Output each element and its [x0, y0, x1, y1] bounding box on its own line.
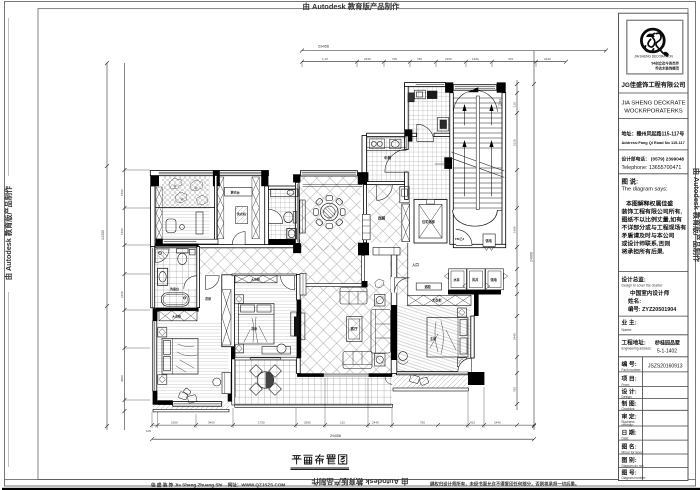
svg-text:主卧: 主卧 — [430, 336, 437, 341]
svg-text:5-1-1402: 5-1-1402 — [657, 349, 677, 355]
svg-text:1,10: 1,10 — [322, 57, 328, 61]
svg-text:编号: ZYZ20501904: 编号: ZYZ20501904 — [628, 305, 676, 313]
svg-text:或设计师联系,否则: 或设计师联系,否则 — [622, 240, 671, 248]
svg-text:姓名:: 姓名: — [627, 297, 641, 305]
svg-text:750: 750 — [420, 421, 425, 425]
svg-text:工程地址:: 工程地址: — [622, 339, 646, 347]
svg-text:1495: 1495 — [513, 226, 517, 233]
svg-text:强电: 强电 — [486, 238, 493, 243]
svg-text:中厨: 中厨 — [384, 155, 392, 160]
svg-text:415: 415 — [470, 421, 475, 425]
svg-text:Address:Fang Qi Road No 115-11: Address:Fang Qi Road No 115-117 — [622, 140, 685, 145]
svg-text:西厨: 西厨 — [378, 216, 386, 221]
svg-text:760: 760 — [417, 57, 422, 61]
svg-text:2460: 2460 — [120, 291, 124, 298]
svg-text:Engineering address:: Engineering address: — [622, 347, 652, 351]
svg-text:编 号:: 编 号: — [622, 360, 637, 368]
svg-text:不详部分或与工程现场有: 不详部分或与工程现场有 — [622, 224, 687, 232]
svg-text:强电: 强电 — [491, 277, 498, 282]
svg-text:桫桂园品墅: 桫桂园品墅 — [655, 340, 680, 347]
svg-text:大衣柜: 大衣柜 — [251, 277, 260, 282]
svg-text:2440: 2440 — [544, 57, 551, 61]
svg-text:2440: 2440 — [364, 57, 371, 61]
svg-text:图 名:: 图 名: — [622, 443, 637, 451]
svg-text:1500: 1500 — [120, 189, 124, 196]
svg-text:中国室内设计师: 中国室内设计师 — [630, 289, 670, 297]
svg-text:图 说:: 图 说: — [622, 177, 639, 186]
svg-text:次卧: 次卧 — [251, 326, 258, 331]
svg-text:JG佳盛饰工程有限公司: JG佳盛饰工程有限公司 — [622, 81, 686, 89]
svg-text:装饰工程有限公司所有,: 装饰工程有限公司所有, — [621, 208, 683, 216]
svg-text:项 目:: 项 目: — [622, 375, 637, 383]
svg-text:2950: 2950 — [304, 421, 311, 425]
svg-text:Diagram number:: Diagram number: — [622, 476, 647, 480]
svg-text:Telephone: 13655700471: Telephone: 13655700471 — [622, 165, 682, 171]
svg-text:1750: 1750 — [258, 421, 265, 425]
svg-text:由 Autodesk 教育版产品制作: 由 Autodesk 教育版产品制作 — [311, 477, 409, 486]
svg-text:图 别:: 图 别: — [622, 456, 637, 464]
svg-text:设计总监:: 设计总监: — [622, 276, 646, 284]
svg-text:14350: 14350 — [101, 230, 105, 240]
svg-text:大衣柜: 大衣柜 — [172, 314, 181, 319]
svg-text:110: 110 — [340, 421, 345, 425]
svg-text:入口: 入口 — [411, 262, 419, 267]
svg-text:更衣台: 更衣台 — [231, 190, 240, 195]
svg-text:由 Autodesk 教育版产品制作: 由 Autodesk 教育版产品制作 — [692, 168, 700, 263]
svg-text:1460: 1460 — [120, 228, 124, 235]
svg-text:24666: 24666 — [530, 252, 534, 262]
svg-text:FM乙3: FM乙3 — [455, 236, 465, 241]
svg-text:470: 470 — [508, 57, 513, 61]
svg-text:将承担所有后果.: 将承担所有后果. — [622, 248, 665, 256]
svg-text:乔达木装饰模范: 乔达木装饰模范 — [654, 66, 679, 71]
svg-text:次卧: 次卧 — [205, 296, 212, 301]
svg-text:29456: 29456 — [330, 433, 342, 438]
svg-text:继权归设计师所有，未经书面允许不得复印任何部分，否则将承担一: 继权归设计师所有，未经书面允许不得复印任何部分，否则将承担一切后果。 — [430, 480, 579, 487]
svg-text:'94创立迄今的杰作: '94创立迄今的杰作 — [651, 61, 680, 66]
svg-text:JIA SHENG DECKRATE: JIA SHENG DECKRATE — [621, 101, 685, 107]
svg-text:设计部电话： (0579) 2399048: 设计部电话： (0579) 2399048 — [622, 156, 685, 163]
svg-text:2160: 2160 — [445, 57, 452, 61]
svg-text:Design to cover the charter:: Design to cover the charter: — [622, 284, 664, 288]
svg-text:住宅电梯: 住宅电梯 — [422, 219, 436, 224]
svg-text:JIA SHENG DECORATION: JIA SHENG DECORATION — [634, 55, 673, 59]
svg-text:Fach number:: Fach number: — [622, 368, 642, 372]
svg-text:佳 盛 装 饰 Jia Sheng Zhuang Shi: 佳 盛 装 饰 Jia Sheng Zhuang Shi 网址：WWW.QZJS… — [151, 481, 285, 488]
svg-text:风井: 风井 — [472, 277, 479, 282]
svg-text:酒柜: 酒柜 — [424, 284, 432, 289]
svg-text:Name:: Name: — [622, 328, 633, 332]
svg-text:日 期:: 日 期: — [622, 429, 637, 437]
svg-text:2120: 2120 — [513, 139, 517, 146]
svg-text:FM乙: FM乙 — [498, 99, 503, 107]
svg-text:Date:: Date: — [622, 436, 630, 440]
svg-text:客厅: 客厅 — [350, 326, 359, 331]
svg-text:地址：赣州风起路115-117号: 地址：赣州风起路115-117号 — [622, 131, 685, 138]
svg-text:The diagram says:: The diagram says: — [622, 187, 668, 193]
svg-text:700: 700 — [392, 57, 397, 61]
svg-text:4000: 4000 — [120, 375, 124, 382]
svg-text:3400: 3400 — [208, 421, 215, 425]
svg-text:1460: 1460 — [472, 57, 479, 61]
svg-text:2440: 2440 — [372, 421, 379, 425]
svg-text:110: 110 — [513, 102, 517, 107]
svg-text:业 主:: 业 主: — [622, 319, 637, 327]
svg-text:洗衣机: 洗衣机 — [237, 211, 246, 216]
svg-text:1500: 1500 — [171, 421, 178, 425]
svg-text:图纸不以比例丈量,如有: 图纸不以比例丈量,如有 — [622, 216, 683, 224]
svg-text:由 Autodesk 教育版产品制作: 由 Autodesk 教育版产品制作 — [303, 2, 401, 11]
svg-text:JSZS20160913: JSZS20160913 — [648, 364, 683, 370]
svg-text:750: 750 — [513, 387, 517, 392]
svg-text:29456: 29456 — [318, 44, 330, 49]
svg-text:洗面台: 洗面台 — [170, 286, 179, 291]
svg-text:本图解释权属佳盛: 本图解释权属佳盛 — [625, 200, 673, 208]
svg-text:2440: 2440 — [494, 421, 501, 425]
svg-text:矛盾请及时与本公司: 矛盾请及时与本公司 — [621, 232, 675, 240]
svg-text:水井: 水井 — [453, 277, 461, 282]
svg-text:2440: 2440 — [513, 333, 517, 340]
svg-text:100: 100 — [146, 429, 151, 433]
svg-text:大衣柜: 大衣柜 — [432, 298, 442, 303]
svg-text:由 Autodesk 教育版产品制作: 由 Autodesk 教育版产品制作 — [4, 185, 13, 280]
svg-text:WOCKRPORATERKS: WOCKRPORATERKS — [624, 109, 683, 115]
